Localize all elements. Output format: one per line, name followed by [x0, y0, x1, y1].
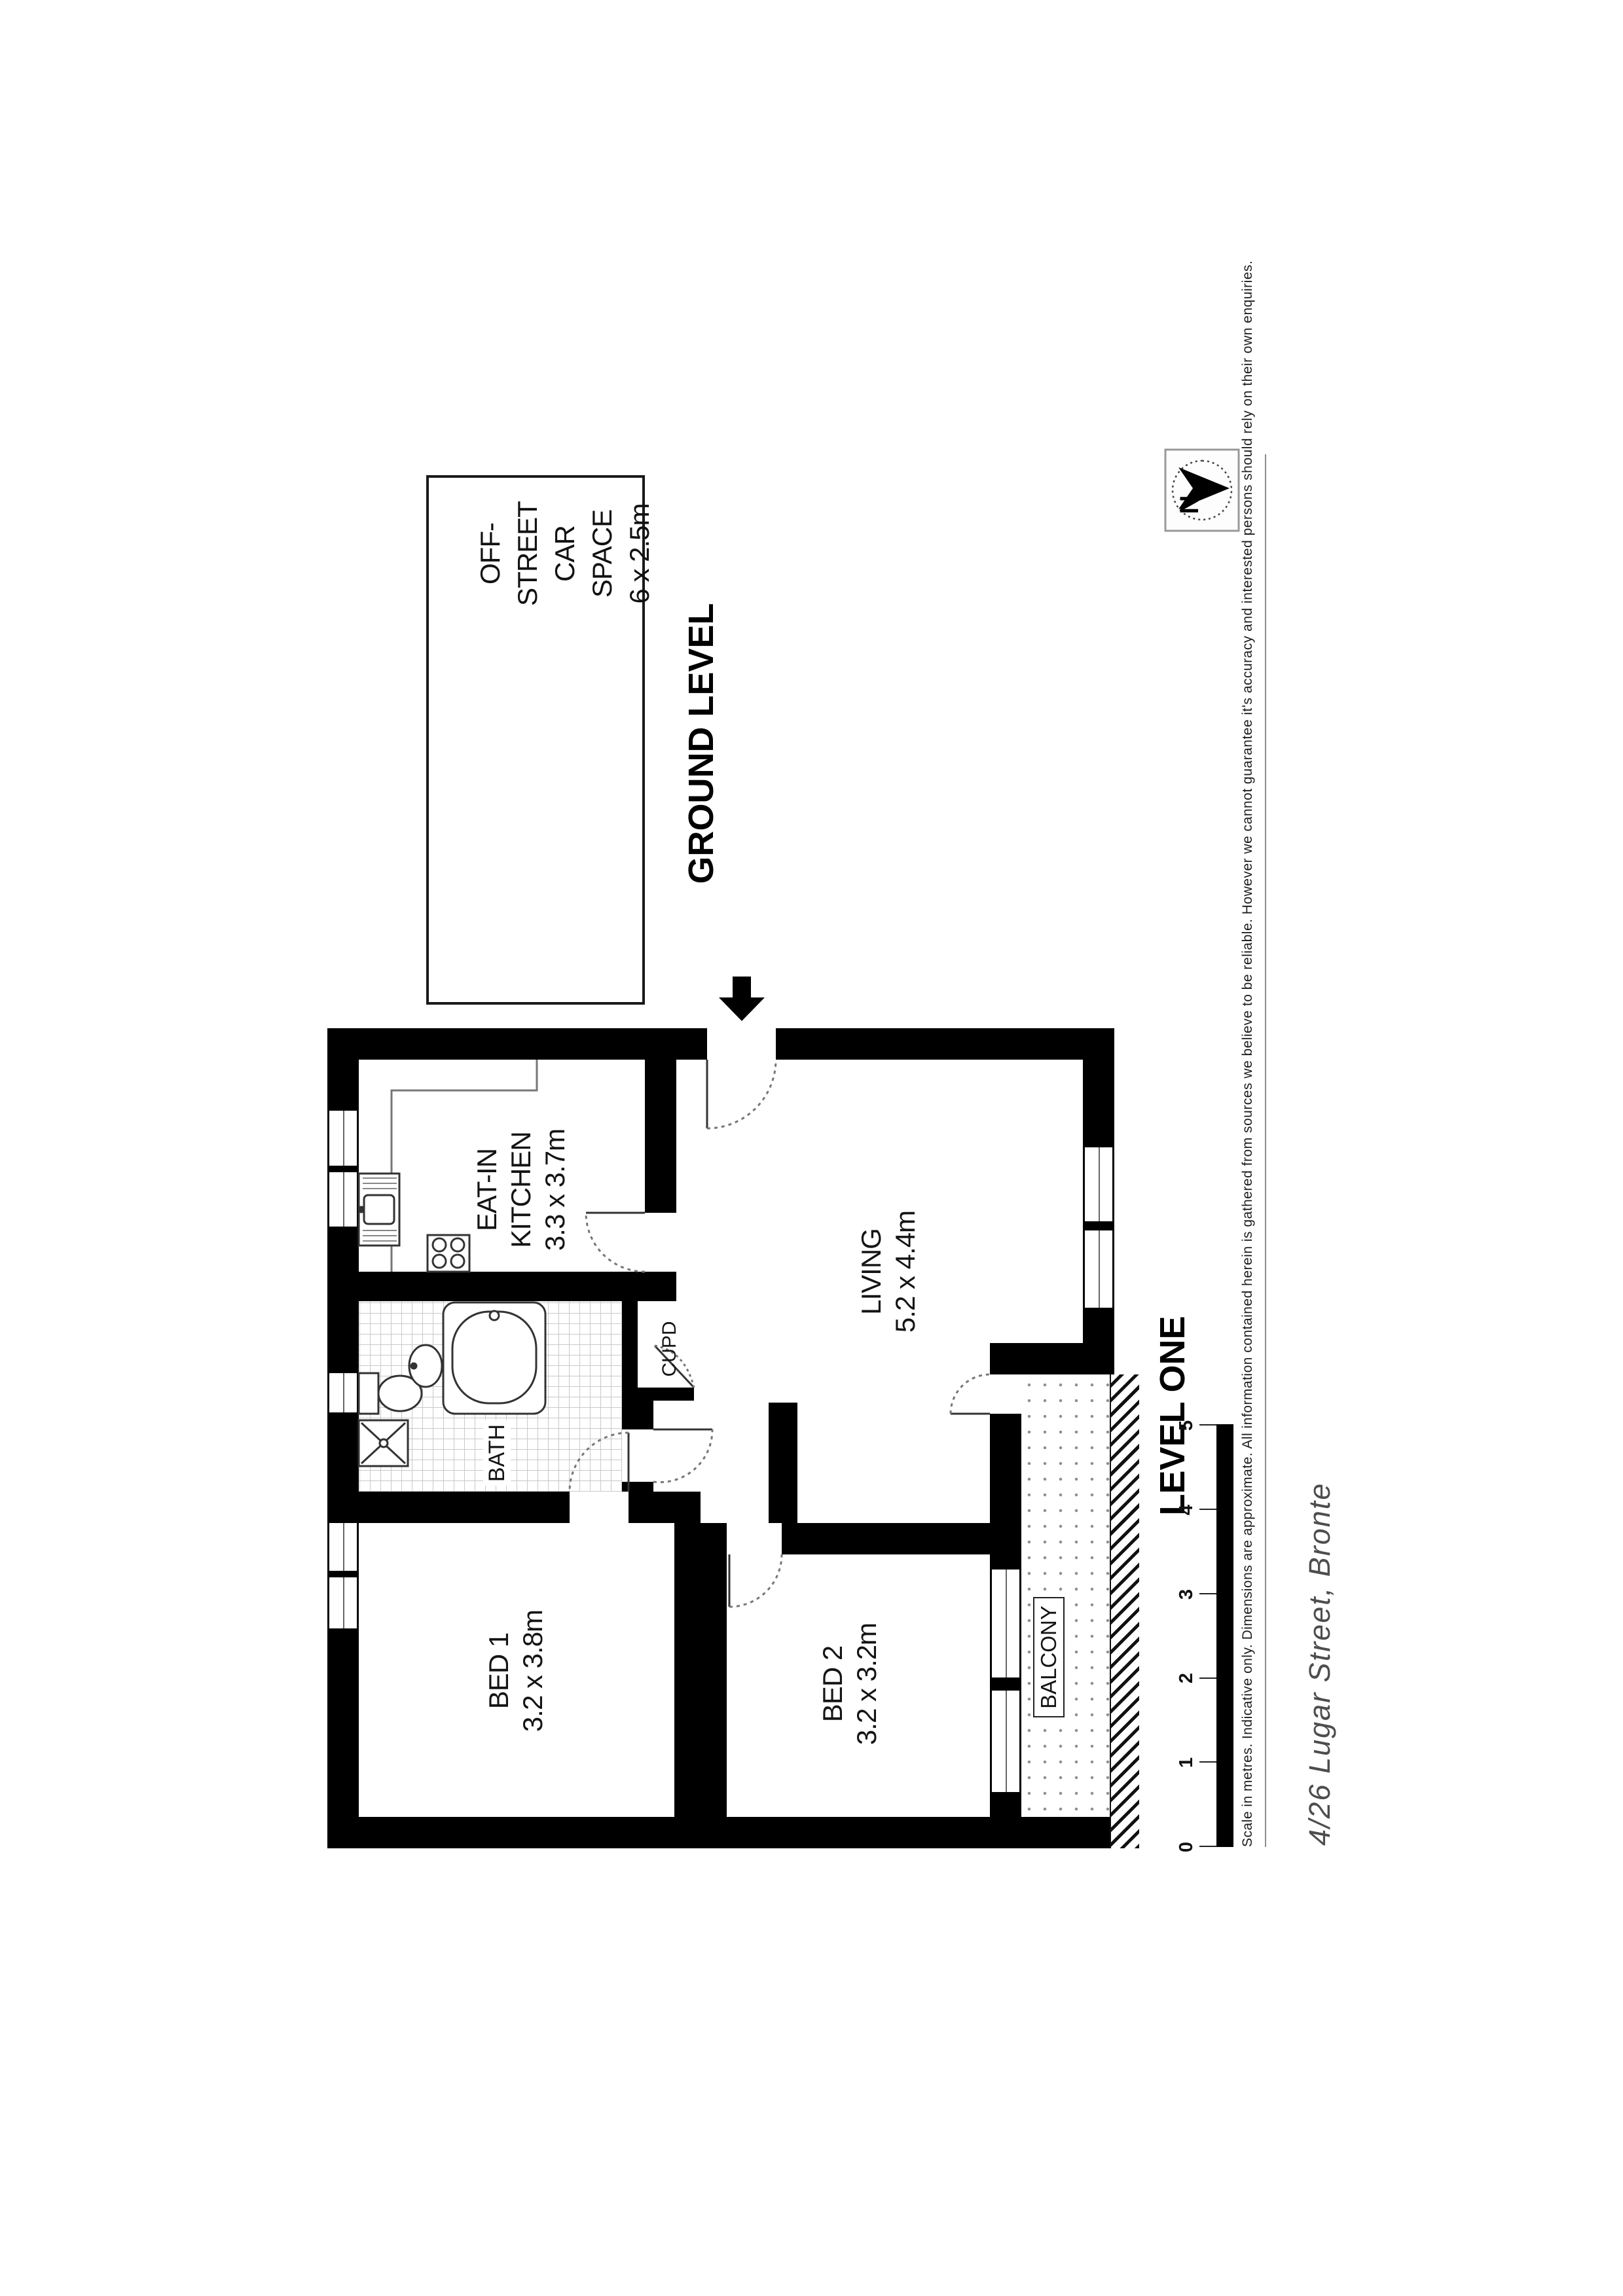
room-dims: 3.2 x 3.8m — [516, 1563, 550, 1779]
room-name: EAT-IN — [470, 1092, 504, 1288]
room-label-bath: BATH — [483, 1420, 511, 1486]
divider-line — [1265, 454, 1266, 1847]
scale-tick — [1199, 1677, 1216, 1679]
disclaimer-text: Scale in metres. Indicative only. Dimens… — [1240, 260, 1256, 1847]
scale-number: 0 — [1176, 1833, 1197, 1861]
north-letter: N — [1175, 495, 1204, 514]
scale-tick — [1199, 1509, 1216, 1510]
door-arc — [570, 1433, 629, 1492]
scale-number: 1 — [1176, 1748, 1197, 1777]
car-space-label: OFF-STREET CAR SPACE 6 x 2.5m — [471, 484, 658, 623]
stove-burner — [433, 1255, 446, 1268]
room-dims: 3.2 x 3.2m — [850, 1576, 884, 1792]
scale-tick — [1199, 1761, 1216, 1763]
property-address: 4/26 Lugar Street, Bronte — [1303, 1482, 1337, 1846]
bathtub-inner — [452, 1312, 536, 1403]
entry-arrow-icon — [719, 977, 765, 1021]
sink-tap — [359, 1207, 364, 1212]
car-space-line: CAR SPACE — [546, 484, 621, 623]
stove-burner — [451, 1238, 464, 1251]
room-label-cupboard: CUPD — [657, 1313, 682, 1385]
stove-burner — [451, 1255, 464, 1268]
ground-level-title: GROUND LEVEL — [681, 580, 721, 907]
scale-bar-rule — [1216, 1424, 1233, 1847]
car-space-dims: 6 x 2.5m — [621, 484, 658, 623]
scale-number: 2 — [1176, 1664, 1197, 1693]
room-name: KITCHEN — [504, 1092, 538, 1288]
room-dims: 5.2 x 4.4m — [888, 1160, 922, 1383]
basin-tap — [411, 1363, 416, 1369]
door-arc — [653, 1429, 712, 1482]
door-arc — [586, 1213, 645, 1272]
scale-tick — [1199, 1593, 1216, 1594]
scale-tick — [1199, 1424, 1216, 1426]
door-arc — [951, 1374, 990, 1414]
rotated-stage: N EAT-IN KITCHEN 3.3 x 3.7m LIVING 5.2 x… — [0, 0, 1623, 2296]
stove-burner — [433, 1238, 446, 1251]
room-label-kitchen: EAT-IN KITCHEN 3.3 x 3.7m — [470, 1092, 572, 1288]
scale-number: 4 — [1176, 1496, 1197, 1524]
room-name: BED 1 — [482, 1563, 516, 1779]
shower-drain — [380, 1439, 388, 1447]
scale-number: 3 — [1176, 1580, 1197, 1609]
floorplan-page: N EAT-IN KITCHEN 3.3 x 3.7m LIVING 5.2 x… — [0, 0, 1623, 2296]
door-arc — [729, 1554, 782, 1607]
door-arc — [707, 1060, 776, 1128]
room-label-balcony: BALCONY — [1033, 1597, 1065, 1717]
toilet-cistern — [359, 1373, 378, 1414]
bathtub-tap — [490, 1311, 499, 1320]
scale-tick — [1199, 1846, 1216, 1847]
room-dims: 3.3 x 3.7m — [538, 1092, 572, 1288]
scale-number: 5 — [1176, 1411, 1197, 1440]
room-label-bed1: BED 1 3.2 x 3.8m — [482, 1563, 550, 1779]
room-label-living: LIVING 5.2 x 4.4m — [854, 1160, 922, 1383]
plan-vector-overlay: N — [0, 0, 1623, 2296]
car-space-line: OFF-STREET — [471, 484, 546, 623]
kitchen-sink-basin — [364, 1195, 394, 1224]
room-label-bed2: BED 2 3.2 x 3.2m — [816, 1576, 884, 1792]
north-indicator: N — [1165, 450, 1239, 531]
room-name: LIVING — [854, 1160, 888, 1383]
room-name: BED 2 — [816, 1576, 850, 1792]
